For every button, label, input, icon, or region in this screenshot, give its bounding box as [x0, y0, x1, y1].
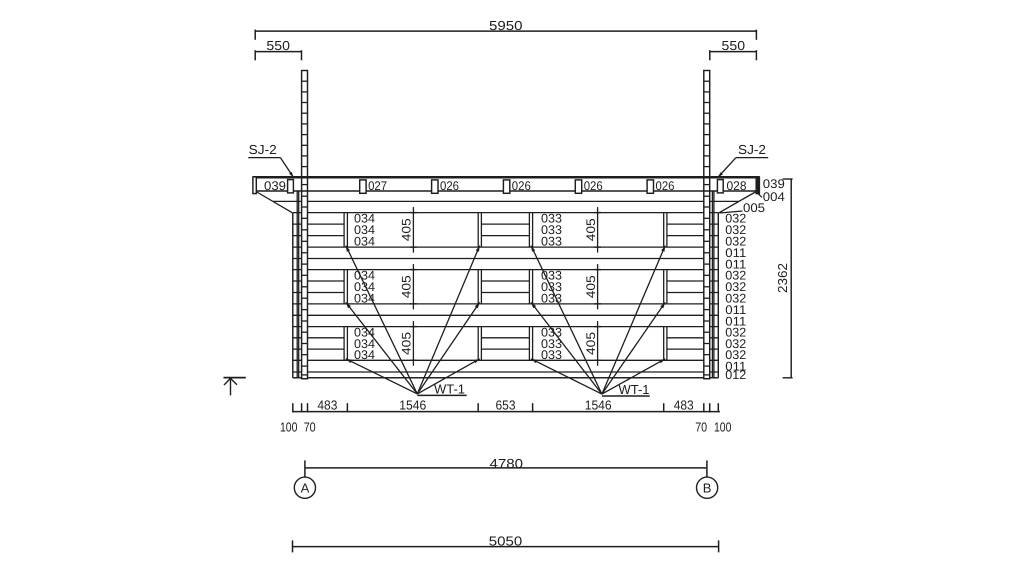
- svg-text:100: 100: [714, 419, 732, 434]
- svg-text:405: 405: [584, 218, 598, 241]
- svg-text:WT-1: WT-1: [434, 382, 465, 397]
- svg-text:SJ-2: SJ-2: [738, 142, 766, 157]
- svg-text:405: 405: [584, 332, 598, 355]
- svg-text:026: 026: [512, 179, 531, 193]
- svg-text:027: 027: [368, 179, 387, 193]
- svg-text:033: 033: [541, 348, 562, 362]
- svg-text:70: 70: [695, 419, 707, 434]
- svg-text:4780: 4780: [490, 456, 524, 471]
- svg-text:653: 653: [496, 398, 516, 413]
- svg-text:405: 405: [400, 218, 414, 241]
- svg-text:WT-1: WT-1: [619, 382, 650, 397]
- svg-text:039: 039: [763, 177, 785, 191]
- svg-text:405: 405: [400, 275, 414, 298]
- svg-text:483: 483: [317, 398, 337, 413]
- svg-text:SJ-2: SJ-2: [249, 142, 277, 157]
- svg-text:2362: 2362: [775, 263, 790, 293]
- svg-text:550: 550: [266, 38, 290, 53]
- svg-text:A: A: [301, 480, 310, 495]
- svg-text:550: 550: [722, 38, 746, 53]
- svg-text:028: 028: [727, 179, 747, 193]
- svg-text:004: 004: [763, 190, 785, 204]
- svg-text:034: 034: [354, 348, 375, 362]
- svg-text:70: 70: [304, 419, 316, 434]
- svg-text:034: 034: [354, 235, 375, 249]
- svg-text:026: 026: [656, 179, 675, 193]
- svg-text:039: 039: [264, 179, 286, 193]
- svg-text:012: 012: [725, 368, 746, 382]
- svg-text:B: B: [703, 480, 712, 495]
- svg-text:100: 100: [280, 419, 298, 434]
- svg-text:5950: 5950: [489, 18, 523, 33]
- svg-text:026: 026: [584, 179, 603, 193]
- svg-text:1546: 1546: [585, 398, 612, 413]
- svg-text:1546: 1546: [399, 398, 426, 413]
- svg-text:405: 405: [400, 332, 414, 355]
- svg-text:026: 026: [440, 179, 459, 193]
- svg-text:405: 405: [584, 275, 598, 298]
- svg-text:033: 033: [541, 235, 562, 249]
- svg-text:483: 483: [674, 398, 694, 413]
- svg-text:5050: 5050: [489, 534, 523, 549]
